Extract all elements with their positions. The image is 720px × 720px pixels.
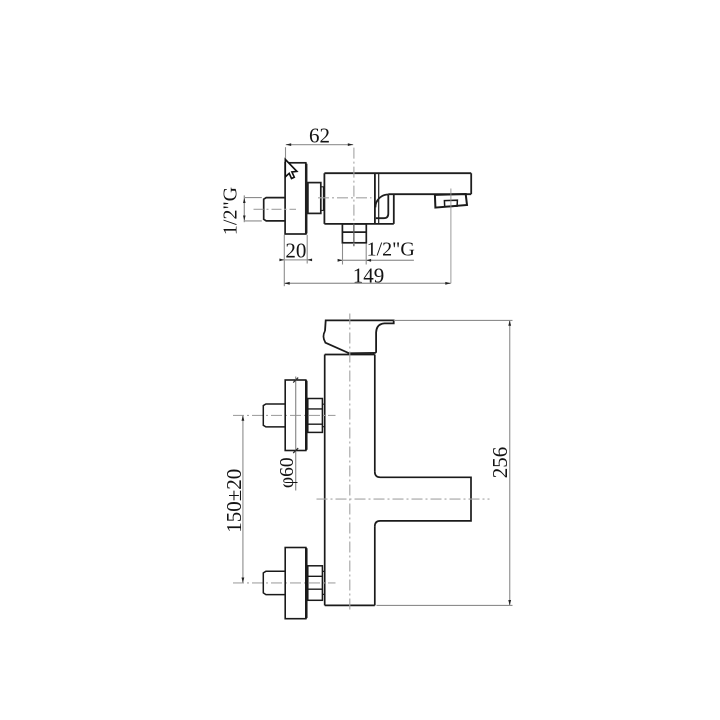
svg-text:φ60: φ60 xyxy=(277,457,298,488)
svg-text:62: 62 xyxy=(309,123,330,147)
svg-text:1/2"G: 1/2"G xyxy=(220,187,242,235)
svg-text:149: 149 xyxy=(353,263,385,287)
svg-text:150±20: 150±20 xyxy=(222,469,246,533)
svg-text:20: 20 xyxy=(285,239,306,263)
svg-text:1/2"G: 1/2"G xyxy=(367,238,415,260)
svg-text:256: 256 xyxy=(488,447,512,479)
